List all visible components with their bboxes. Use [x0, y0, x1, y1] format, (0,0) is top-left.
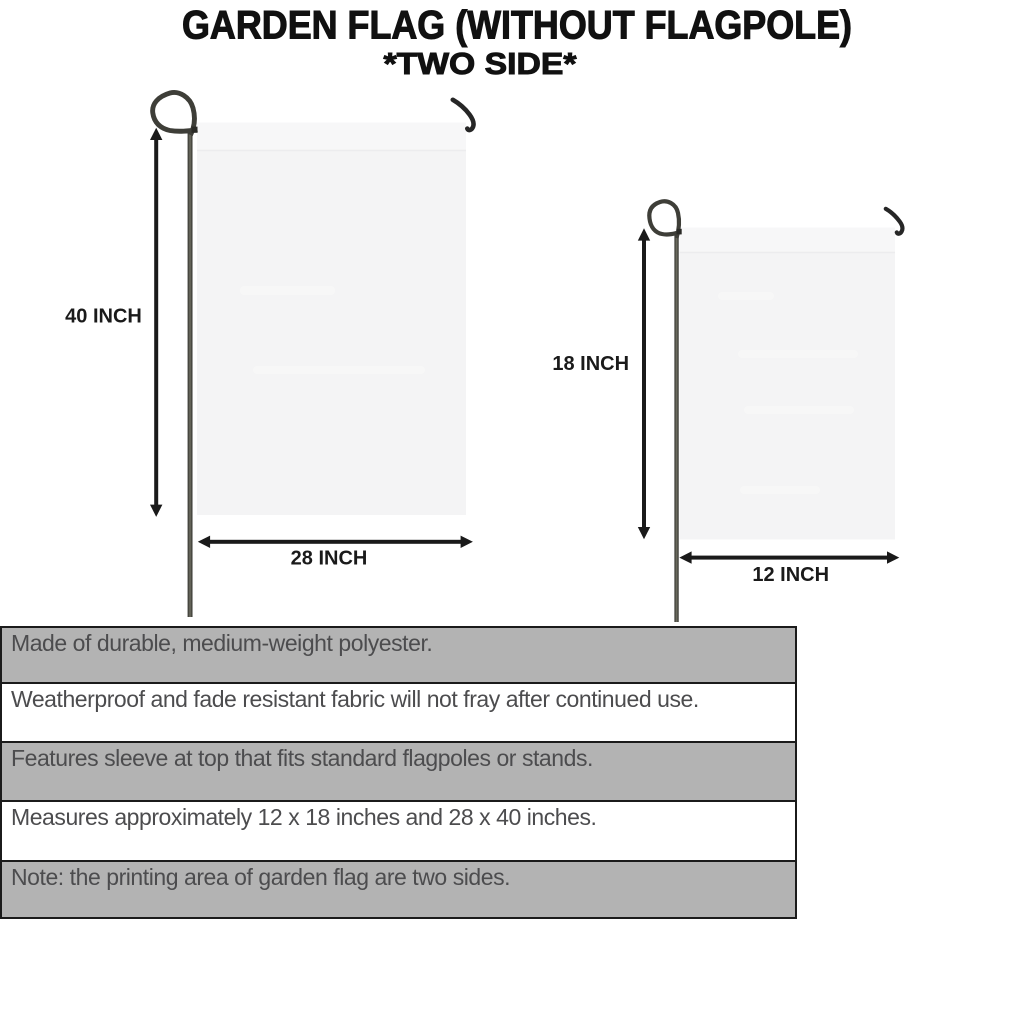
svg-text:12 INCH: 12 INCH	[752, 564, 829, 586]
svg-text:28 INCH: 28 INCH	[291, 548, 368, 570]
svg-text:*TWO SIDE*: *TWO SIDE*	[384, 46, 578, 81]
svg-text:18 INCH: 18 INCH	[552, 353, 629, 375]
svg-text:40 INCH: 40 INCH	[65, 306, 142, 328]
svg-text:GARDEN FLAG (WITHOUT FLAGPOLE): GARDEN FLAG (WITHOUT FLAGPOLE)	[182, 4, 852, 48]
